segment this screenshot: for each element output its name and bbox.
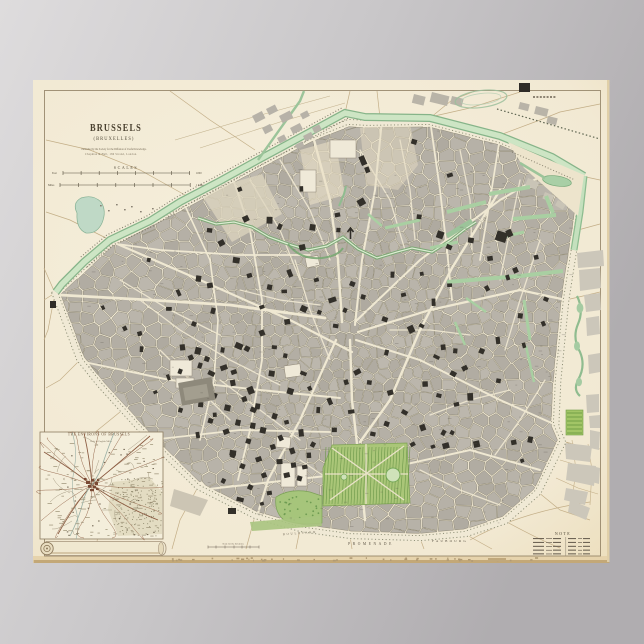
svg-text:THE ENVIRONS OF BRUSSELS: THE ENVIRONS OF BRUSSELS [68,433,130,437]
svg-text:SCALES: SCALES [114,165,139,170]
svg-text:Chapman & Hall, 186 Strand, Lo: Chapman & Hall, 186 Strand, London. [85,153,137,156]
svg-text:1 Mile: 1 Mile [196,184,204,187]
svg-text:(BRUXELLES): (BRUXELLES) [94,137,135,142]
svg-text:PROMENADE: PROMENADE [348,542,394,546]
svg-text:Scale for the Environs: Scale for the Environs [222,543,243,546]
svg-text:FAUBOURG: FAUBOURG [432,539,468,543]
svg-text:Feet: Feet [52,172,57,175]
svg-text:Miles: Miles [48,184,54,187]
svg-text:Scale of English Miles: Scale of English Miles [90,440,112,443]
svg-text:BRUSSELS: BRUSSELS [90,122,142,134]
svg-text:1000: 1000 [196,172,202,175]
svg-text:Published by the Society for t: Published by the Society for the Diffusi… [82,148,147,151]
svg-text:NOTE: NOTE [555,531,571,536]
